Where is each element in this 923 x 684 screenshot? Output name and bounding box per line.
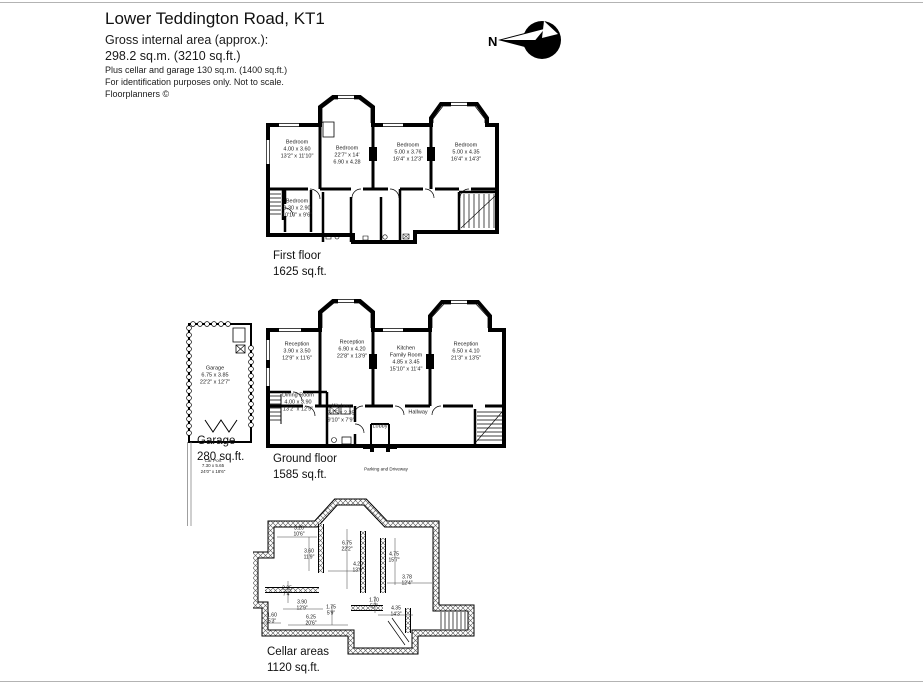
dim-imperial: 14'3": [390, 611, 401, 617]
dimension-label: 1.60 5'3": [267, 613, 277, 625]
room-label: Bedroom 3.30 x 2.90 10'10" x 9'6": [282, 199, 312, 220]
dim-imperial: 13'9": [352, 567, 363, 573]
room-label: Reception 6.90 x 4.20 22'8" x 13'9": [337, 340, 367, 361]
room-name: Kitchen Family Room: [390, 345, 422, 358]
room-label: Kitchen 2.75 x 2.35 9'10" x 7'9": [327, 404, 354, 425]
top-divider: [0, 2, 923, 3]
room-name: Dining Room: [282, 393, 314, 399]
ground-floor-plan: [263, 294, 508, 456]
room-dim-metric: 3.90 x 3.50: [283, 349, 310, 355]
room-dim-imperial: 22'8" x 13'9": [337, 353, 367, 359]
compass-north-label: N: [488, 34, 497, 49]
floor-name: Cellar areas: [267, 645, 329, 661]
dim-imperial: 20'6": [305, 620, 316, 626]
room-dim-imperial: 13'2" x 12'9": [283, 406, 313, 412]
dimension-label: 1.75 5'9": [326, 605, 336, 617]
floor-name: First floor: [273, 249, 327, 265]
room-name: Bedroom: [286, 140, 308, 146]
room-label: Bedroom 5.00 x 3.76 16'4" x 12'3": [393, 143, 423, 164]
carport-label: Car Port 7.30 x 5.65 24'0" x 18'6": [201, 458, 226, 474]
dim-imperial: 12'9": [296, 605, 307, 611]
room-dim-imperial: 16'4" x 14'3": [451, 156, 481, 162]
gross-area-caption: Gross internal area (approx.):: [105, 33, 325, 47]
dimension-label: 2.25 7'4": [282, 586, 292, 598]
room-label: Garage 6.75 x 3.85 22'2" x 12'7": [200, 366, 230, 387]
floor-name: Garage: [197, 434, 244, 450]
room-dim-metric: 3.30 x 2.90: [283, 206, 310, 212]
dim-imperial: 5'7": [370, 603, 378, 609]
room-label: Reception 6.50 x 4.10 21'3" x 13'5": [451, 342, 481, 363]
compass-drawing: N: [478, 8, 582, 72]
room-dim-metric: 6.75 x 3.85: [201, 373, 228, 379]
dimension-label: 4.75 15'7": [388, 552, 399, 564]
room-dim-imperial: 22'7" x 14': [334, 153, 359, 159]
room-name: Kitchen: [332, 404, 350, 410]
floor-area: 1625 sq.ft.: [273, 265, 327, 281]
dim-imperial: 7'4": [283, 591, 291, 597]
room-dim-imperial: 13'2" x 11'10": [281, 153, 314, 159]
room-dim-metric: 4.85 x 3.45: [392, 359, 419, 365]
gross-area-value: 298.2 sq.m. (3210 sq.ft.): [105, 49, 325, 63]
room-name: Reception: [285, 342, 310, 348]
bottom-divider: [0, 681, 923, 682]
first-floor-plan: [263, 92, 503, 247]
dim-imperial: 15'7": [388, 557, 399, 563]
room-dim-metric: 4.00 x 3.60: [283, 147, 310, 153]
dimension-label: 3.20 10'6": [293, 526, 304, 538]
dimension-label: 3.78 12'4": [401, 575, 412, 587]
room-dim-imperial: 16'4" x 12'3": [393, 156, 423, 162]
room-label: Kitchen Family Room 4.85 x 3.45 15'10" x…: [388, 345, 424, 373]
garage-plan: [183, 318, 261, 530]
hallway-label: Hallway: [408, 410, 427, 417]
dim-imperial: 12'4": [401, 580, 412, 586]
dim-imperial: 22'2": [341, 546, 352, 552]
room-dim-imperial: 9'10" x 7'9": [327, 417, 354, 423]
room-dim-metric: 6.50 x 4.10: [452, 349, 479, 355]
room-label: Dining Room 4.00 x 3.90 13'2" x 12'9": [282, 393, 314, 414]
room-name: Bedroom: [286, 199, 308, 205]
header: Lower Teddington Road, KT1 Gross interna…: [105, 9, 325, 99]
room-dim-imperial: 12'9" x 11'6": [282, 355, 312, 361]
cellar-walls: [255, 502, 471, 651]
room-dim-metric: 2.75 x 2.35: [327, 411, 354, 417]
room-dim-metric: 5.00 x 4.35: [452, 150, 479, 156]
room-label: Bedroom 4.00 x 3.60 13'2" x 11'10": [281, 140, 314, 161]
room-name: Lobby: [373, 424, 388, 430]
dim-imperial: 5'9": [327, 610, 335, 616]
dimension-label: 1.70 5'7": [369, 598, 379, 610]
parking-text: Parking and Driveway: [364, 466, 408, 471]
note-identification: For identification purposes only. Not to…: [105, 77, 325, 87]
note-extra-area: Plus cellar and garage 130 sq.m. (1400 s…: [105, 65, 325, 75]
room-dim-imperial: 10'10" x 9'6": [282, 212, 312, 218]
first-floor-caption: First floor 1625 sq.ft.: [273, 249, 327, 280]
room-name: Car Port: [205, 458, 222, 463]
floor-area: 1585 sq.ft.: [273, 468, 337, 484]
room-dim-imperial: 21'3" x 13'5": [451, 355, 481, 361]
room-dim-imperial: 15'10" x 11'4": [390, 366, 423, 372]
north-compass-icon: N: [478, 8, 582, 72]
room-dim-metric: 5.00 x 3.76: [394, 150, 421, 156]
room-dim-imperial: 22'2" x 12'7": [200, 379, 230, 385]
room-label: Bedroom 5.00 x 4.35 16'4" x 14'3": [451, 143, 481, 164]
room-name: Bedroom: [397, 143, 419, 149]
room-label: Bedroom 22'7" x 14' 6.90 x 4.28: [333, 146, 360, 167]
lobby-label: Lobby: [373, 424, 388, 431]
floor-area: 1120 sq.ft.: [267, 661, 329, 677]
parking-label: Parking and Driveway: [364, 466, 408, 471]
dimension-label: 3.90 12'9": [296, 600, 307, 612]
dimension-label: 6.75 22'2": [341, 541, 352, 553]
room-name: Bedroom: [455, 143, 477, 149]
dimension-label: 3.60 11'9": [304, 549, 315, 561]
cellar-caption: Cellar areas 1120 sq.ft.: [267, 645, 329, 676]
room-name: Reception: [340, 340, 365, 346]
room-dim-metric: 4.00 x 3.90: [284, 400, 311, 406]
dim-imperial: 5'3": [268, 618, 276, 624]
page-title: Lower Teddington Road, KT1: [105, 9, 325, 29]
floor-name: Ground floor: [273, 452, 337, 468]
ground-floor-caption: Ground floor 1585 sq.ft.: [273, 452, 337, 483]
dim-imperial: 10'6": [293, 531, 304, 537]
garage-walls: [187, 322, 254, 526]
room-name: Garage: [206, 366, 224, 372]
cellar-plan: [253, 493, 488, 668]
first-floor-walls: [265, 94, 497, 242]
floorplan-page: Lower Teddington Road, KT1 Gross interna…: [0, 0, 923, 684]
dimension-label: 4.35 14'3": [390, 606, 401, 618]
dimension-label: 4.20 13'9": [352, 562, 363, 574]
dim-imperial: 11'9": [304, 554, 315, 560]
room-name: Hallway: [408, 410, 427, 416]
room-dim-imperial: 24'0" x 18'6": [201, 469, 226, 474]
room-label: Reception 3.90 x 3.50 12'9" x 11'6": [282, 342, 312, 363]
room-dim-metric: 6.90 x 4.20: [338, 347, 365, 353]
room-dim-metric: 7.30 x 5.65: [202, 463, 224, 468]
room-name: Bedroom: [336, 146, 358, 152]
room-name: Reception: [454, 342, 479, 348]
room-dim-metric: 6.90 x 4.28: [333, 159, 360, 165]
dimension-label: 6.25 20'6": [305, 615, 316, 627]
